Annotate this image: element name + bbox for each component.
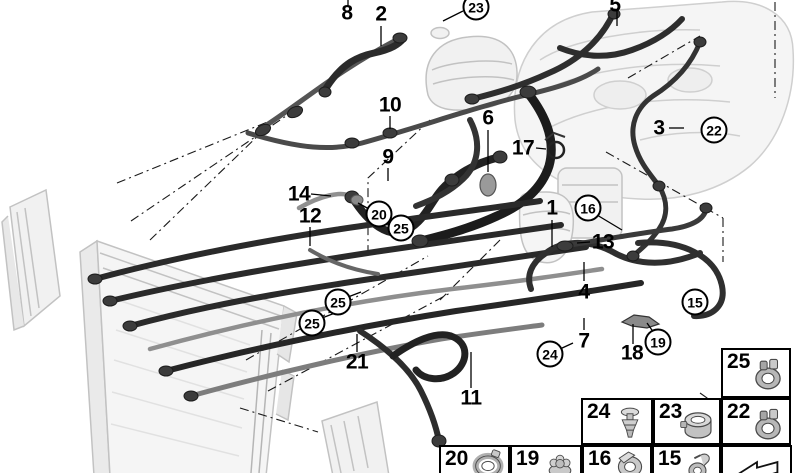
hose-clamp-large-icon <box>471 449 505 473</box>
legend-number: 15 <box>658 448 681 470</box>
callout-1: 1 <box>546 198 557 219</box>
expansion-rivet-icon <box>611 406 649 444</box>
circled-callout-19: 19 <box>645 329 672 356</box>
circled-callout-25: 25 <box>299 310 326 337</box>
callout-13: 13 <box>592 232 614 253</box>
aux-radiator-bottom-drawing <box>322 402 389 473</box>
callout-3: 3 <box>653 118 664 139</box>
callout-12: 12 <box>299 206 321 227</box>
legend-number: 25 <box>727 351 750 373</box>
hose-clamp-icon <box>749 406 787 444</box>
holder-clamp-icon <box>613 449 647 473</box>
parts-diagram-stage: 8252310632217914116201225134152525719182… <box>0 0 800 473</box>
callout-2: 2 <box>375 4 386 25</box>
circled-callout-25: 25 <box>325 289 352 316</box>
legend-cell-direction-arrow <box>721 445 792 473</box>
engine-block-drawing <box>514 1 793 199</box>
callout-4: 4 <box>578 282 589 303</box>
callout-10: 10 <box>379 95 401 116</box>
direction-arrow-icon <box>731 451 783 473</box>
callout-11: 11 <box>460 388 481 409</box>
callout-17: 17 <box>512 138 534 159</box>
callout-9: 9 <box>382 147 393 168</box>
callout-18: 18 <box>621 343 643 364</box>
callout-6: 6 <box>482 108 493 129</box>
aux-radiator-left-drawing <box>2 190 60 330</box>
circled-callout-25: 25 <box>388 215 415 242</box>
callout-21: 21 <box>346 352 368 373</box>
legend-cell-16: 16 <box>582 445 652 473</box>
legend-cell-22: 22 <box>721 398 791 445</box>
legend-cell-24: 24 <box>581 398 653 445</box>
legend-cell-19: 19 <box>510 445 582 473</box>
circled-callout-22: 22 <box>701 117 728 144</box>
callout-7: 7 <box>578 331 589 352</box>
legend-number: 19 <box>516 448 539 470</box>
callout-5: 5 <box>609 0 620 16</box>
circled-callout-24: 24 <box>537 341 564 368</box>
callout-8: 8 <box>341 3 352 24</box>
legend-number: 22 <box>727 401 750 423</box>
legend-number: 16 <box>588 448 611 470</box>
legend-cell-15: 15 <box>652 445 721 473</box>
profile-clamp-icon <box>679 406 717 444</box>
spring-clamp-icon <box>682 449 716 473</box>
legend-number: 20 <box>445 448 468 470</box>
legend-cell-20: 20 <box>439 445 510 473</box>
legend-number: 24 <box>587 401 610 423</box>
circled-callout-16: 16 <box>575 195 602 222</box>
legend-cell-23: 23 <box>653 398 721 445</box>
legend-cell-25: 25 <box>721 348 791 398</box>
plastic-nut-icon <box>543 449 577 473</box>
circled-callout-15: 15 <box>682 289 709 316</box>
callout-14: 14 <box>288 184 310 205</box>
hose-clamp-icon <box>749 356 787 394</box>
